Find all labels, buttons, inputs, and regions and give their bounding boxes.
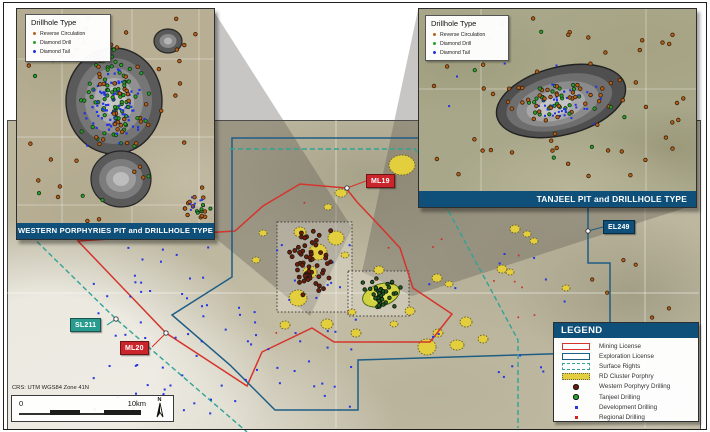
scale-bar: 0 10km N [11,395,174,422]
north-arrow-icon: N [154,398,166,419]
mining-license-swatch [562,343,590,350]
drillhole-type-legend-tanjeel: Drillhole Type Reverse Circulation Diamo… [425,15,509,61]
rd-cluster-porphyry-swatch [562,373,590,380]
map-figure: Drillhole Type Reverse Circulation Diamo… [0,0,710,432]
regional-drilling-dot-icon [575,416,578,419]
exploration-license-swatch [562,353,590,360]
callout-el249: EL249 [603,220,635,234]
tanjeel-inset-title-banner: TANJEEL PIT and DRILLHOLE TYPE [419,191,696,207]
crs-label: CRS: UTM WGS84 Zone 41N [12,385,89,391]
reverse-circulation-dot-icon [33,32,36,35]
legend-row-diamond-drill: Diamond Drill [31,38,105,47]
legend-item-mining-license: Mining License [560,341,693,351]
legend-row-reverse-circulation: Reverse Circulation [431,30,503,39]
tanjeel-drilling-dot-icon [573,394,579,400]
legend-row-diamond-drill: Diamond Drill [431,39,503,48]
legend-item-surface-rights: Surface Rights [560,361,693,371]
legend-item-western-porphyry-drilling: Western Porphyry Drilling [560,382,693,392]
scale-max-label: 10km [128,399,146,408]
tanjeel-pit-benches [489,52,634,150]
callout-sl211: SL211 [70,318,101,332]
reverse-circulation-dot-icon [433,33,436,36]
diamond-tail-dot-icon [33,50,36,53]
legend-item-exploration-license: Exploration License [560,351,693,361]
diamond-tail-dot-icon [433,51,436,54]
drillhole-legend-title: Drillhole Type [431,19,503,28]
legend-title: LEGEND [554,323,698,338]
development-drilling-dot-icon [575,406,578,409]
diamond-drill-dot-icon [433,42,436,45]
inset-tanjeel: Drillhole Type Reverse Circulation Diamo… [418,8,697,208]
callout-ml20: ML20 [120,341,149,355]
drillhole-legend-title: Drillhole Type [31,18,105,27]
callout-ml19: ML19 [366,174,395,188]
scale-bar-rule [19,409,141,415]
surface-rights-swatch [562,363,590,370]
legend-row-reverse-circulation: Reverse Circulation [31,29,105,38]
legend-row-diamond-tail: Diamond Tail [431,48,503,57]
western-porphyry-drilling-dot-icon [573,384,579,390]
legend-item-tanjeel-drilling: Tanjeel Drilling [560,392,693,402]
drillhole-type-legend-western: Drillhole Type Reverse Circulation Diamo… [25,14,111,62]
legend-item-development-drilling: Development Drilling [560,402,693,412]
legend-item-rd-cluster-porphyry: RD Cluster Porphry [560,372,693,382]
western-inset-title-banner: WESTERN PORPHYRIES PIT and DRILLHOLE TYP… [17,223,214,239]
map-legend: LEGEND Mining License Exploration Licens… [553,322,699,422]
scale-zero-label: 0 [19,399,23,408]
diamond-drill-dot-icon [33,41,36,44]
legend-row-diamond-tail: Diamond Tail [31,47,105,56]
inset-western-porphyries: Drillhole Type Reverse Circulation Diamo… [16,8,215,240]
legend-item-regional-drilling: Regional Drilling [560,412,693,422]
